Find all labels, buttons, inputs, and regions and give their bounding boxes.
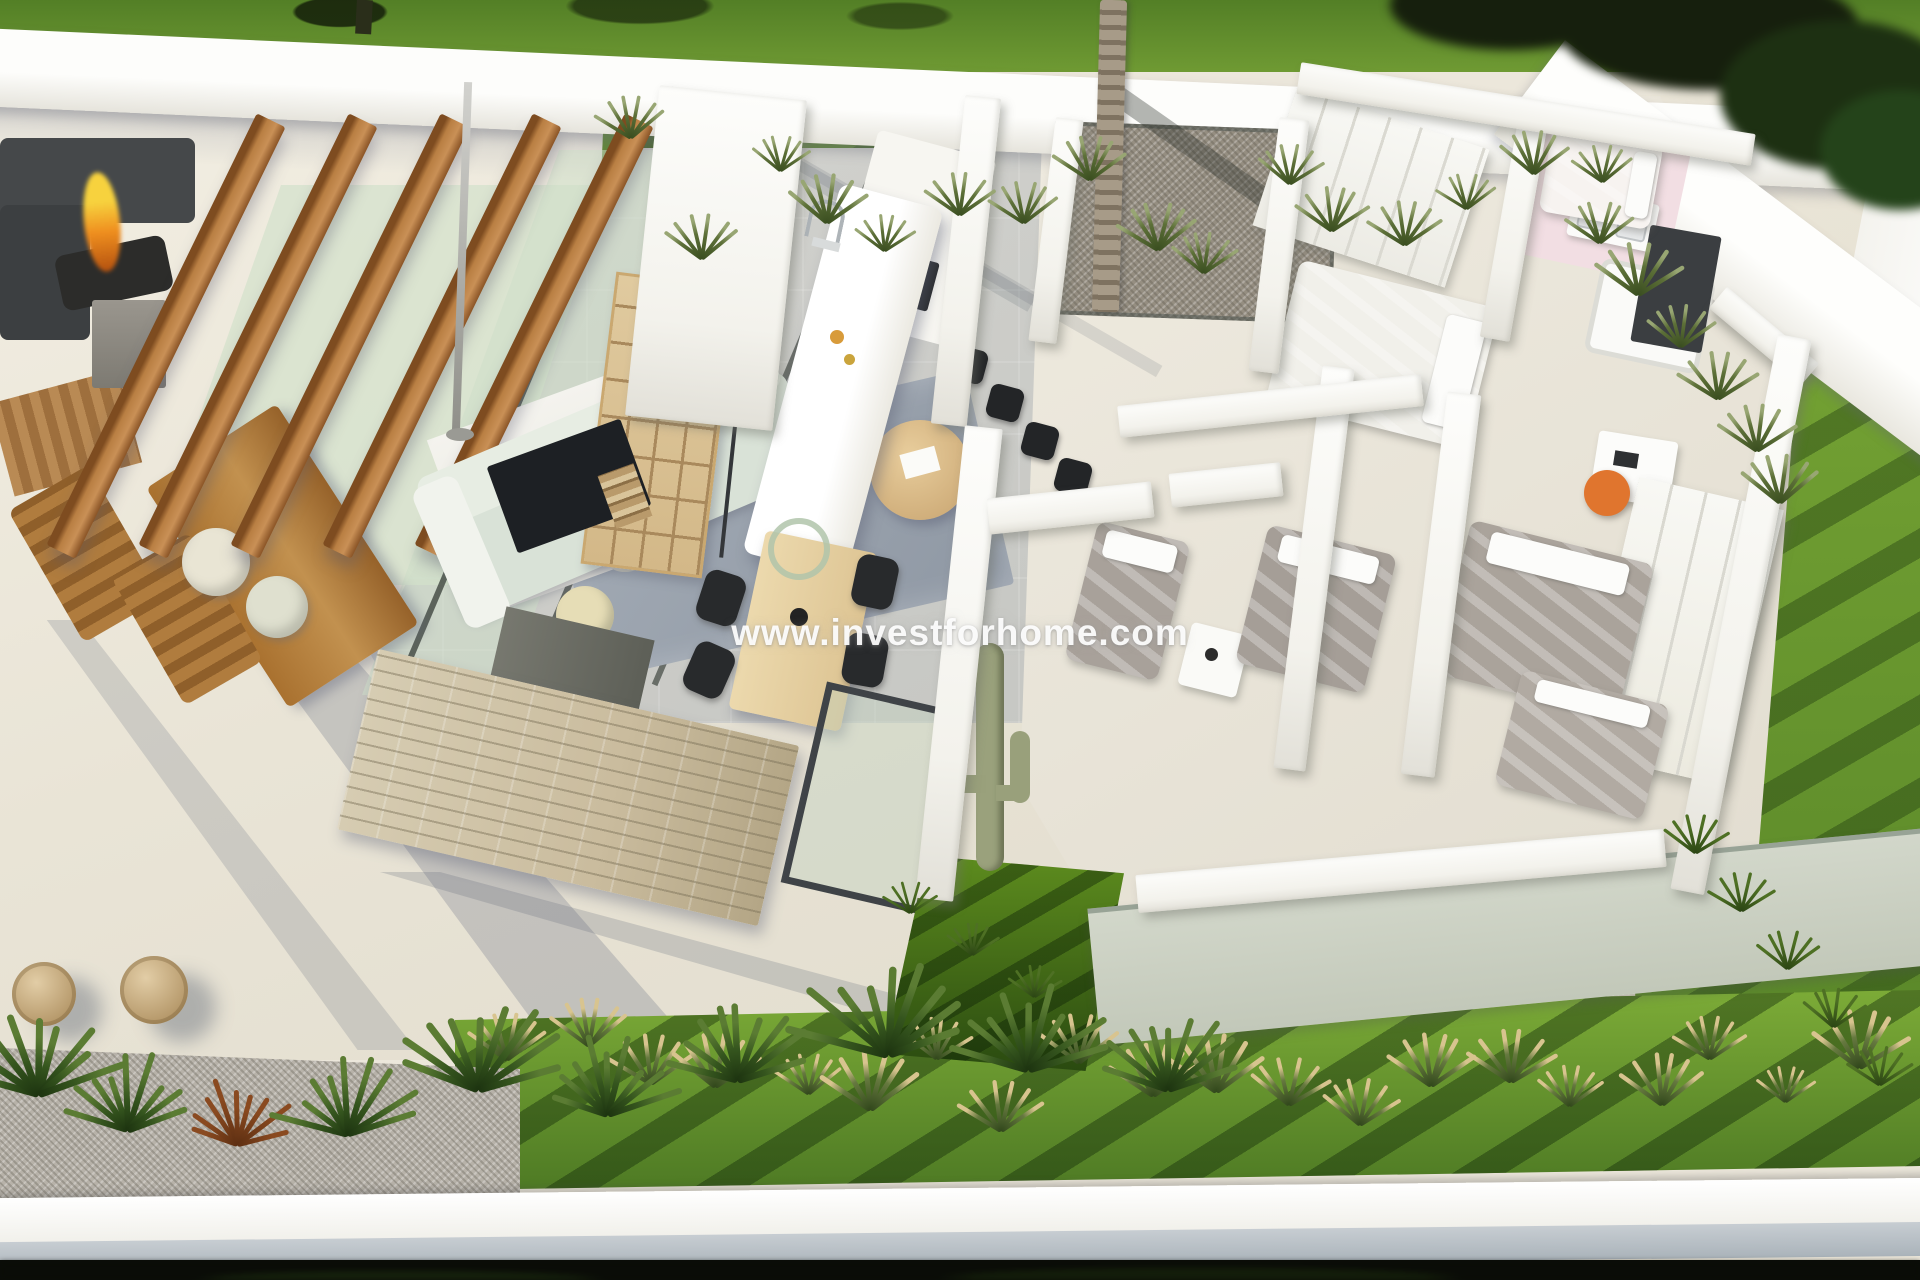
watermark: www.investforhome.com [731, 612, 1189, 654]
rattan-lantern [12, 962, 76, 1026]
cactus-arm [996, 785, 1022, 801]
cactus-stem [976, 643, 1004, 871]
rattan-lantern [120, 956, 188, 1024]
fruit-bowl [844, 354, 855, 365]
desk-chair-orange [1584, 470, 1630, 516]
nightstand-lamp [1205, 648, 1218, 661]
gravel-bed-bottom-left [0, 1048, 520, 1198]
fruit-bowl [830, 330, 844, 344]
foreground-foliage-bottom [0, 1262, 1920, 1280]
tree-trunk-top [355, 0, 373, 34]
villa-floorplan-render: www.investforhome.com [0, 0, 1920, 1280]
pendant-lamp-ring [768, 518, 830, 580]
